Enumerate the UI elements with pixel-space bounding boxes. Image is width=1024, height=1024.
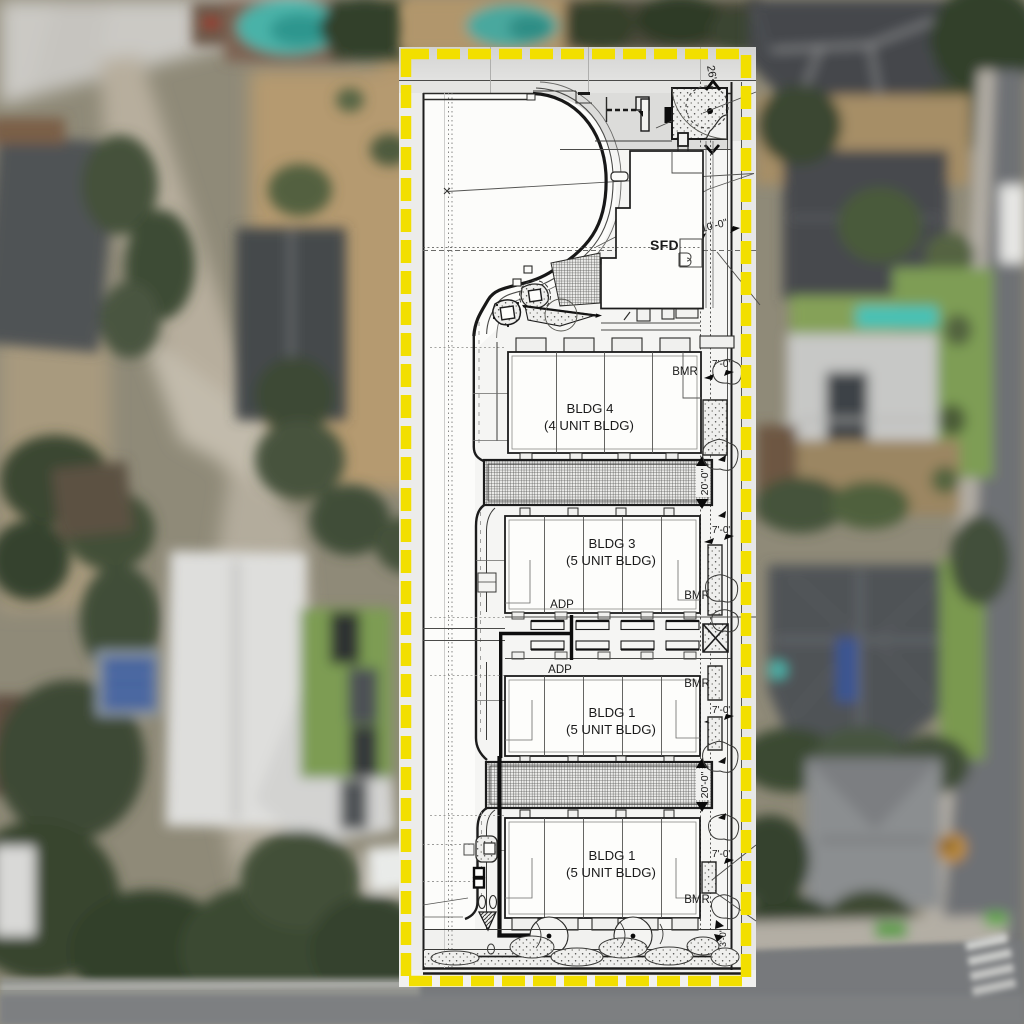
svg-text:BLDG 4: BLDG 4 — [567, 401, 614, 416]
svg-text:BMR: BMR — [684, 678, 710, 690]
svg-text:(5 UNIT BLDG): (5 UNIT BLDG) — [566, 722, 656, 737]
svg-text:20'-0": 20'-0" — [699, 771, 711, 798]
svg-text:BLDG 3: BLDG 3 — [589, 536, 636, 551]
svg-text:3'-0": 3'-0" — [718, 929, 728, 947]
svg-text:7'-0": 7'-0" — [712, 849, 732, 860]
svg-text:(5 UNIT BLDG): (5 UNIT BLDG) — [566, 865, 656, 880]
svg-text:(5 UNIT BLDG): (5 UNIT BLDG) — [566, 553, 656, 568]
svg-text:ADP: ADP — [550, 599, 574, 611]
svg-text:BMR: BMR — [672, 366, 698, 378]
svg-text:7'-0": 7'-0" — [712, 525, 732, 536]
svg-text:SFD: SFD — [650, 237, 679, 253]
svg-text:20'-0": 20'-0" — [699, 468, 711, 495]
svg-text:BLDG 1: BLDG 1 — [589, 848, 636, 863]
svg-text:7'-0": 7'-0" — [712, 705, 732, 716]
svg-text:ADP: ADP — [548, 664, 572, 676]
svg-text:(4 UNIT BLDG): (4 UNIT BLDG) — [544, 418, 634, 433]
svg-text:BLDG 1: BLDG 1 — [589, 705, 636, 720]
svg-text:BMR: BMR — [684, 894, 710, 906]
